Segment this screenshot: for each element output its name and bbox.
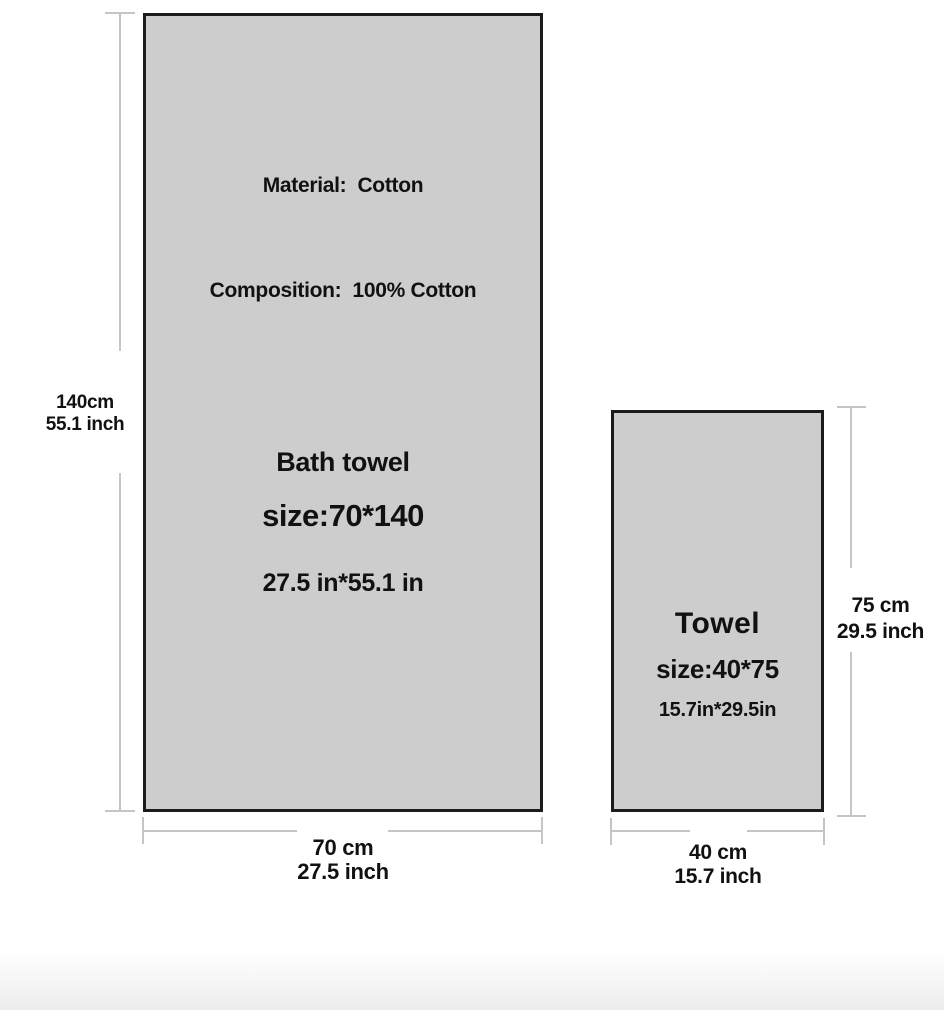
bath-towel-rectangle: Material: Cotton Composition: 100% Cotto… <box>143 13 543 812</box>
material-line: Material: Cotton <box>146 168 540 203</box>
towel-width-cm: 40 cm <box>618 841 818 865</box>
towel-width-line-right <box>747 830 824 832</box>
towel-height-line-lower <box>850 652 852 816</box>
bath-towel-width-label: 70 cm 27.5 inch <box>243 836 443 884</box>
bath-towel-size-inch: 27.5 in*55.1 in <box>146 567 540 599</box>
towel-rectangle: Towel size:40*75 15.7in*29.5in <box>611 410 824 812</box>
bath-towel-width-inch: 27.5 inch <box>243 860 443 884</box>
towel-height-cm: 75 cm <box>823 593 938 619</box>
dimension-tick-bottom <box>837 815 866 817</box>
bath-towel-height-label: 140cm 55.1 inch <box>20 392 150 436</box>
towel-size-inch: 15.7in*29.5in <box>614 697 821 723</box>
towel-width-inch: 15.7 inch <box>618 865 818 889</box>
towel-size-diagram: Material: Cotton Composition: 100% Cotto… <box>0 0 944 1010</box>
dimension-tick-right <box>541 817 543 844</box>
bath-towel-height-line-upper <box>119 13 121 351</box>
bath-towel-width-line-left <box>143 830 297 832</box>
towel-name: Towel <box>614 607 821 641</box>
bath-towel-name: Bath towel <box>146 445 540 479</box>
bath-towel-specs: Material: Cotton Composition: 100% Cotto… <box>146 98 540 378</box>
bath-towel-width-cm: 70 cm <box>243 836 443 860</box>
bath-towel-width-line-right <box>388 830 543 832</box>
towel-height-inch: 29.5 inch <box>823 619 938 645</box>
bath-towel-height-cm: 140cm <box>20 392 150 414</box>
dimension-tick-bottom <box>105 810 135 812</box>
towel-height-label: 75 cm 29.5 inch <box>823 593 938 645</box>
towel-height-line-upper <box>850 408 852 568</box>
bath-towel-size-cm: size:70*140 <box>146 497 540 535</box>
towel-size-cm: size:40*75 <box>614 653 821 685</box>
bottom-gradient <box>0 952 944 1010</box>
towel-width-label: 40 cm 15.7 inch <box>618 841 818 889</box>
bath-towel-height-inch: 55.1 inch <box>20 414 150 436</box>
dimension-tick-right <box>823 818 825 845</box>
bath-towel-height-line-lower <box>119 473 121 811</box>
towel-width-line-left <box>611 830 690 832</box>
composition-line: Composition: 100% Cotton <box>146 273 540 308</box>
